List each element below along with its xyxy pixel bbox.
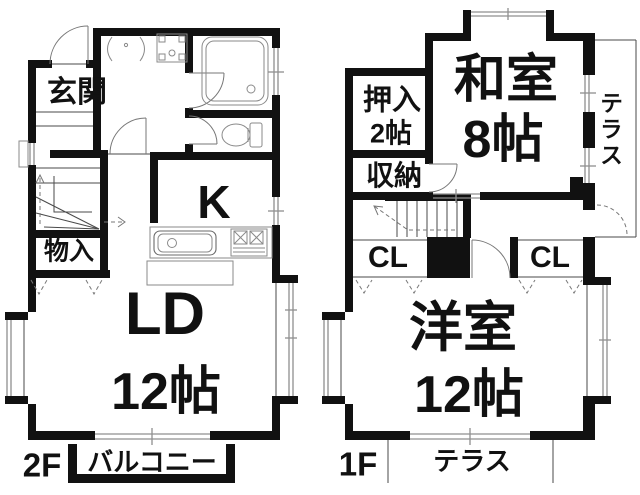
toilet-icon: [222, 123, 262, 147]
winder-stairs-icon: [36, 168, 125, 229]
label-terrace-side: テラス: [598, 91, 621, 169]
room-label-cl-left: CL: [368, 243, 408, 273]
label-balcony: バルコニー: [87, 449, 216, 475]
room-label-genkan: 玄関: [47, 78, 107, 108]
room-label-kitchen: K: [197, 179, 230, 225]
room-label-yoshitsu-size: 12帖: [414, 369, 524, 421]
genkan-step-lines: [36, 112, 93, 126]
kitchen-sink-icon: [154, 231, 216, 255]
washing-machine-pan-icon: [157, 34, 187, 62]
room-label-monoire: 物入: [44, 240, 94, 265]
room-label-washitsu-size: 8帖: [463, 114, 544, 166]
room-label-yoshitsu: 洋室: [409, 301, 517, 355]
room-label-cl-right: CL: [530, 243, 570, 273]
straight-stairs-icon: [374, 201, 457, 237]
closet-fold-marks-1f: [356, 280, 582, 293]
room-label-washitsu: 和室: [454, 54, 558, 106]
kitchen-counter: [147, 227, 272, 285]
stove-icon: [231, 229, 267, 256]
room-label-oshiire-size: 2帖: [370, 121, 412, 148]
bathtub-icon: [202, 37, 268, 105]
room-label-oshiire: 押入: [363, 87, 421, 116]
washbasin-icon: [108, 37, 145, 61]
room-label-ld-size: 12帖: [111, 366, 221, 418]
floor-label-1f: 1F: [339, 448, 378, 481]
closet-fold-marks-2f: [31, 280, 102, 294]
label-terrace-bottom: テラス: [433, 448, 510, 474]
room-label-ld: LD: [125, 284, 205, 344]
floor-label-2f: 2F: [23, 449, 62, 482]
floor-plan: 玄関 物入 K LD 12帖 バルコニー 2F 和室 8帖 押入 2帖 収納 C…: [0, 0, 640, 495]
room-label-shuno: 収納: [366, 162, 422, 190]
